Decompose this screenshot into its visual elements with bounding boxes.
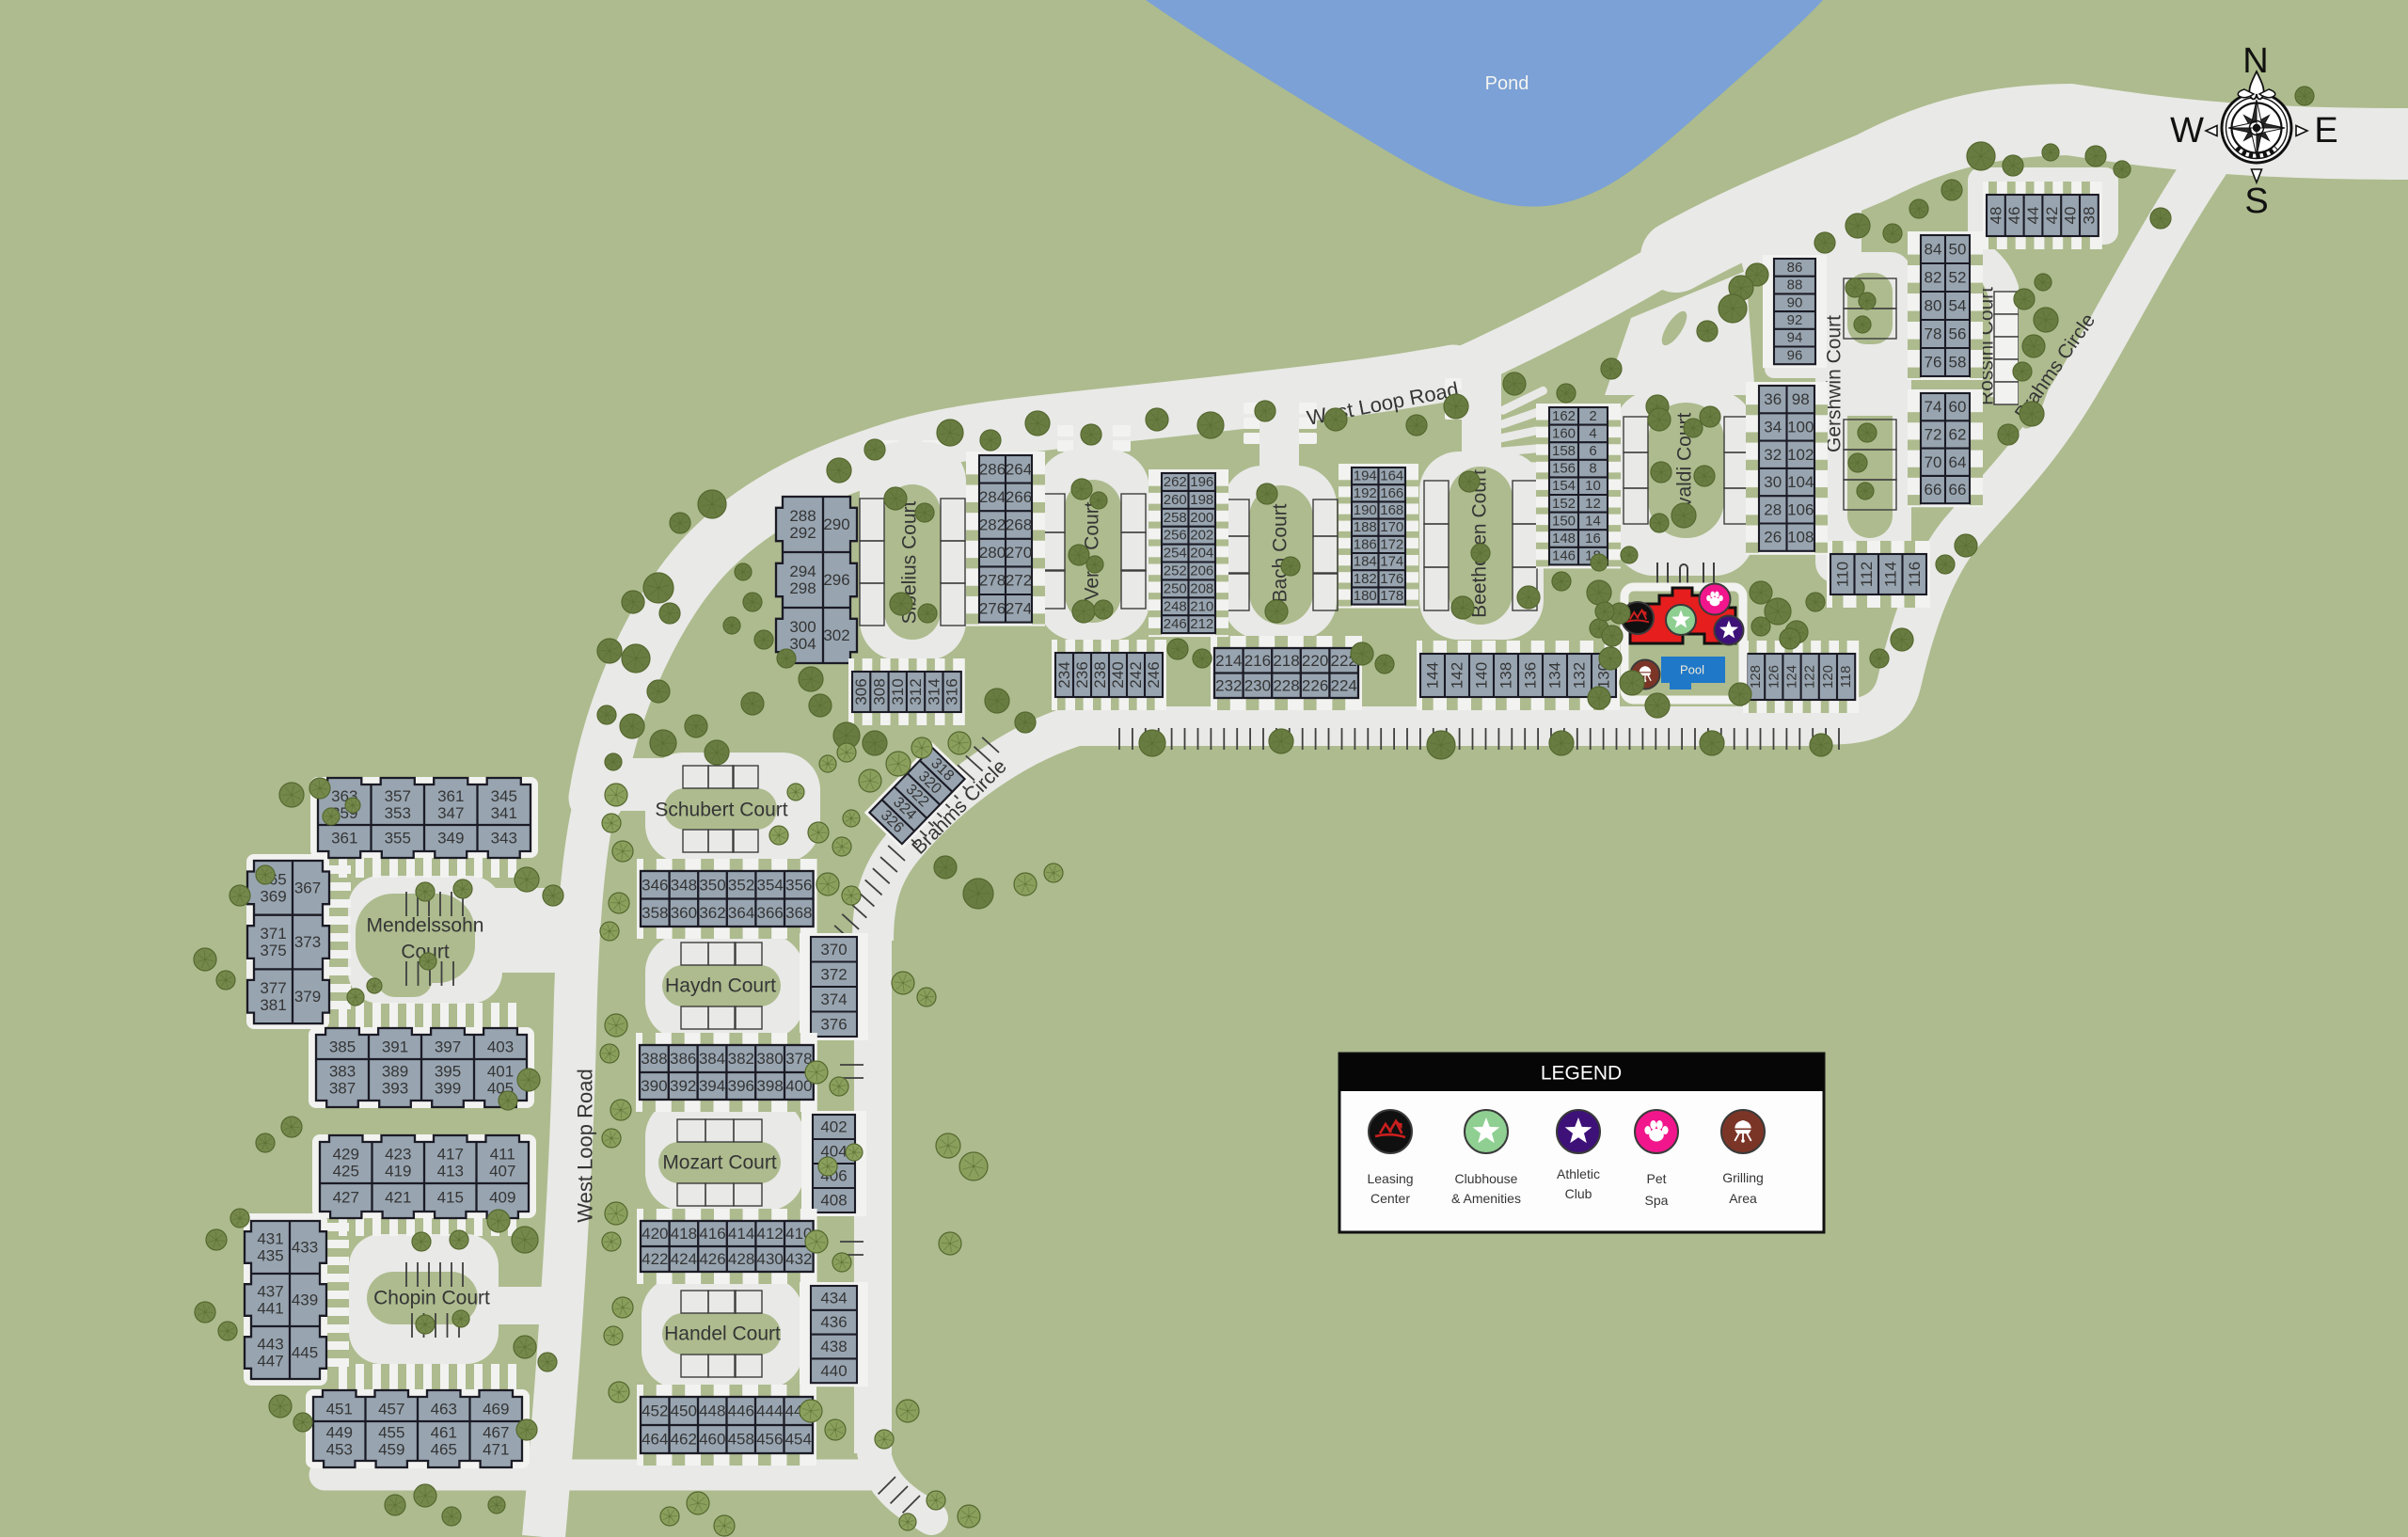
svg-text:210: 210 <box>1190 598 1213 614</box>
svg-text:122: 122 <box>1802 665 1818 689</box>
svg-text:292: 292 <box>789 524 816 542</box>
svg-text:375: 375 <box>260 942 286 959</box>
svg-text:394: 394 <box>699 1077 725 1095</box>
svg-text:425: 425 <box>333 1163 359 1180</box>
svg-text:160: 160 <box>1552 425 1576 441</box>
svg-text:132: 132 <box>1571 662 1589 689</box>
svg-text:216: 216 <box>1244 652 1271 670</box>
svg-text:194: 194 <box>1354 468 1377 484</box>
svg-text:304: 304 <box>789 635 816 653</box>
svg-text:435: 435 <box>257 1247 283 1265</box>
svg-text:346: 346 <box>642 876 668 894</box>
svg-text:150: 150 <box>1552 513 1576 529</box>
svg-text:180: 180 <box>1354 588 1377 604</box>
svg-text:80: 80 <box>1925 297 1942 315</box>
svg-text:440: 440 <box>820 1362 847 1380</box>
svg-text:397: 397 <box>435 1038 461 1056</box>
svg-text:& Amenities: & Amenities <box>1451 1191 1521 1206</box>
svg-text:220: 220 <box>1302 652 1328 670</box>
svg-text:114: 114 <box>1881 562 1899 587</box>
svg-text:376: 376 <box>820 1015 847 1033</box>
svg-text:60: 60 <box>1949 398 1967 416</box>
svg-text:374: 374 <box>820 990 847 1008</box>
svg-text:296: 296 <box>823 571 849 589</box>
svg-text:Leasing: Leasing <box>1367 1171 1413 1186</box>
svg-text:8: 8 <box>1589 461 1596 477</box>
svg-text:136: 136 <box>1522 662 1540 689</box>
svg-text:414: 414 <box>728 1225 754 1243</box>
svg-text:274: 274 <box>1006 599 1032 617</box>
svg-text:254: 254 <box>1164 546 1187 562</box>
svg-text:36: 36 <box>1764 390 1782 408</box>
svg-text:447: 447 <box>257 1353 283 1371</box>
svg-text:110: 110 <box>1833 562 1851 587</box>
svg-text:352: 352 <box>728 876 754 894</box>
svg-text:392: 392 <box>670 1077 696 1095</box>
svg-text:439: 439 <box>292 1291 318 1309</box>
svg-text:380: 380 <box>756 1050 783 1068</box>
svg-text:176: 176 <box>1380 571 1403 587</box>
svg-text:399: 399 <box>435 1080 461 1098</box>
svg-text:Grilling: Grilling <box>1722 1170 1764 1185</box>
svg-text:429: 429 <box>333 1146 359 1164</box>
svg-text:50: 50 <box>1949 241 1967 259</box>
svg-text:Pool: Pool <box>1680 663 1704 677</box>
svg-text:172: 172 <box>1380 536 1403 552</box>
svg-text:288: 288 <box>789 507 816 525</box>
svg-text:108: 108 <box>1787 529 1814 547</box>
svg-text:62: 62 <box>1949 425 1967 443</box>
svg-text:Area: Area <box>1729 1191 1757 1206</box>
svg-text:361: 361 <box>331 830 357 848</box>
svg-text:443: 443 <box>257 1336 283 1354</box>
svg-text:140: 140 <box>1473 662 1491 689</box>
svg-text:389: 389 <box>382 1063 408 1081</box>
svg-text:214: 214 <box>1215 652 1242 670</box>
svg-text:N: N <box>2242 41 2268 81</box>
svg-text:88: 88 <box>1787 277 1803 293</box>
svg-text:366: 366 <box>757 904 784 922</box>
svg-text:186: 186 <box>1354 536 1377 552</box>
svg-text:350: 350 <box>699 876 725 894</box>
svg-text:354: 354 <box>757 876 784 894</box>
svg-text:256: 256 <box>1164 528 1187 544</box>
svg-text:106: 106 <box>1787 500 1814 518</box>
svg-text:461: 461 <box>431 1424 457 1442</box>
svg-text:280: 280 <box>979 544 1006 562</box>
svg-text:431: 431 <box>257 1230 283 1248</box>
svg-text:Chopin Court: Chopin Court <box>373 1288 490 1309</box>
svg-text:348: 348 <box>671 876 697 894</box>
svg-text:357: 357 <box>385 787 411 805</box>
svg-text:358: 358 <box>642 904 668 922</box>
svg-text:126: 126 <box>1766 665 1782 689</box>
svg-text:82: 82 <box>1925 269 1942 287</box>
svg-text:26: 26 <box>1764 529 1782 547</box>
svg-text:38: 38 <box>2080 207 2098 225</box>
svg-text:West Loop Road: West Loop Road <box>574 1069 597 1222</box>
svg-text:379: 379 <box>294 988 321 1006</box>
svg-text:48: 48 <box>1987 207 2004 225</box>
svg-text:58: 58 <box>1949 354 1967 372</box>
svg-text:206: 206 <box>1190 563 1213 578</box>
svg-text:460: 460 <box>699 1431 725 1449</box>
svg-text:438: 438 <box>820 1338 847 1355</box>
svg-text:98: 98 <box>1792 390 1810 408</box>
svg-text:266: 266 <box>1006 488 1032 506</box>
svg-text:232: 232 <box>1215 676 1242 694</box>
svg-text:347: 347 <box>437 804 464 822</box>
svg-text:417: 417 <box>437 1146 464 1164</box>
svg-text:423: 423 <box>385 1146 411 1164</box>
svg-text:238: 238 <box>1091 661 1109 688</box>
svg-text:Spa: Spa <box>1645 1193 1669 1208</box>
svg-text:240: 240 <box>1109 661 1127 688</box>
svg-text:246: 246 <box>1164 616 1187 632</box>
svg-text:446: 446 <box>728 1402 754 1420</box>
svg-text:445: 445 <box>292 1344 318 1362</box>
svg-text:146: 146 <box>1552 548 1576 564</box>
svg-text:408: 408 <box>820 1192 847 1210</box>
svg-text:86: 86 <box>1787 260 1803 276</box>
svg-text:64: 64 <box>1949 453 1967 471</box>
svg-text:294: 294 <box>789 563 816 580</box>
svg-text:148: 148 <box>1552 531 1576 547</box>
svg-text:Schubert Court: Schubert Court <box>655 800 787 821</box>
svg-text:230: 230 <box>1244 676 1271 694</box>
svg-text:449: 449 <box>326 1424 353 1442</box>
svg-text:252: 252 <box>1164 563 1187 578</box>
svg-text:70: 70 <box>1925 453 1942 471</box>
svg-text:284: 284 <box>979 488 1006 506</box>
svg-text:158: 158 <box>1552 443 1576 459</box>
svg-text:142: 142 <box>1449 662 1466 689</box>
svg-text:152: 152 <box>1552 496 1576 512</box>
svg-text:416: 416 <box>699 1225 725 1243</box>
svg-text:52: 52 <box>1949 269 1967 287</box>
svg-text:168: 168 <box>1380 502 1403 518</box>
svg-text:250: 250 <box>1164 580 1187 596</box>
svg-text:154: 154 <box>1552 478 1576 494</box>
svg-text:Bach Court: Bach Court <box>1270 503 1291 602</box>
svg-text:218: 218 <box>1273 652 1299 670</box>
svg-text:74: 74 <box>1925 398 1942 416</box>
svg-text:Handel Court: Handel Court <box>664 1323 781 1345</box>
svg-text:34: 34 <box>1764 418 1782 436</box>
svg-text:226: 226 <box>1302 676 1328 694</box>
svg-text:16: 16 <box>1585 531 1601 547</box>
svg-text:162: 162 <box>1552 408 1576 424</box>
svg-text:316: 316 <box>943 678 961 705</box>
svg-text:28: 28 <box>1764 500 1782 518</box>
svg-text:455: 455 <box>378 1424 404 1442</box>
svg-text:413: 413 <box>437 1163 464 1180</box>
svg-text:402: 402 <box>820 1118 847 1136</box>
svg-text:128: 128 <box>1748 665 1764 689</box>
svg-text:343: 343 <box>491 830 517 848</box>
svg-text:464: 464 <box>642 1431 668 1449</box>
svg-text:306: 306 <box>852 678 870 705</box>
svg-text:412: 412 <box>757 1225 784 1243</box>
svg-text:441: 441 <box>257 1300 283 1318</box>
svg-text:370: 370 <box>820 941 847 959</box>
svg-text:170: 170 <box>1380 519 1403 535</box>
svg-text:234: 234 <box>1055 661 1073 688</box>
svg-text:Mendelssohn: Mendelssohn <box>367 915 484 937</box>
svg-text:270: 270 <box>1006 544 1032 562</box>
svg-text:467: 467 <box>483 1424 509 1442</box>
svg-text:428: 428 <box>728 1250 754 1268</box>
svg-text:40: 40 <box>2062 207 2080 225</box>
svg-text:202: 202 <box>1190 528 1213 544</box>
svg-text:312: 312 <box>907 678 925 705</box>
svg-text:469: 469 <box>483 1401 509 1418</box>
svg-text:278: 278 <box>979 572 1006 590</box>
svg-text:433: 433 <box>292 1239 318 1257</box>
svg-text:188: 188 <box>1354 519 1377 535</box>
svg-text:368: 368 <box>785 904 812 922</box>
svg-text:465: 465 <box>431 1441 457 1459</box>
svg-text:383: 383 <box>329 1063 356 1081</box>
svg-text:90: 90 <box>1787 294 1803 310</box>
svg-text:388: 388 <box>641 1050 667 1068</box>
svg-text:427: 427 <box>333 1189 359 1207</box>
svg-text:14: 14 <box>1585 513 1601 529</box>
svg-text:286: 286 <box>979 460 1006 478</box>
svg-text:411: 411 <box>490 1146 515 1164</box>
svg-text:S: S <box>2244 182 2268 221</box>
svg-text:456: 456 <box>756 1431 783 1449</box>
svg-text:454: 454 <box>785 1431 812 1449</box>
svg-text:444: 444 <box>756 1402 783 1420</box>
svg-text:182: 182 <box>1354 571 1377 587</box>
svg-text:166: 166 <box>1380 485 1403 501</box>
svg-text:Haydn Court: Haydn Court <box>665 975 776 997</box>
svg-text:401: 401 <box>487 1063 514 1081</box>
svg-text:184: 184 <box>1354 554 1377 570</box>
svg-text:355: 355 <box>385 830 411 848</box>
svg-text:437: 437 <box>257 1283 283 1301</box>
svg-text:268: 268 <box>1006 516 1032 534</box>
svg-text:94: 94 <box>1787 330 1803 346</box>
svg-text:390: 390 <box>641 1077 667 1095</box>
svg-text:30: 30 <box>1764 473 1782 491</box>
svg-text:W: W <box>2170 111 2204 151</box>
svg-text:10: 10 <box>1585 478 1601 494</box>
svg-text:54: 54 <box>1949 297 1967 315</box>
svg-text:92: 92 <box>1787 312 1803 328</box>
svg-text:448: 448 <box>699 1402 725 1420</box>
svg-text:264: 264 <box>1006 460 1032 478</box>
svg-text:421: 421 <box>385 1189 411 1207</box>
svg-text:76: 76 <box>1925 354 1942 372</box>
svg-text:377: 377 <box>260 979 286 997</box>
svg-text:276: 276 <box>979 599 1006 617</box>
svg-text:138: 138 <box>1497 662 1515 689</box>
svg-text:102: 102 <box>1787 446 1814 464</box>
svg-text:42: 42 <box>2043 207 2061 225</box>
svg-text:Center: Center <box>1370 1191 1410 1206</box>
svg-text:2: 2 <box>1589 408 1596 424</box>
svg-text:66: 66 <box>1949 481 1967 499</box>
svg-text:360: 360 <box>671 904 697 922</box>
svg-text:415: 415 <box>437 1189 464 1207</box>
svg-text:393: 393 <box>382 1080 408 1098</box>
svg-text:100: 100 <box>1787 418 1814 436</box>
svg-text:200: 200 <box>1190 510 1213 526</box>
svg-text:385: 385 <box>329 1038 356 1056</box>
svg-text:Clubhouse: Clubhouse <box>1455 1171 1518 1186</box>
svg-text:398: 398 <box>756 1077 783 1095</box>
svg-text:369: 369 <box>260 887 286 905</box>
svg-text:Athletic: Athletic <box>1557 1166 1600 1181</box>
svg-text:228: 228 <box>1273 676 1299 694</box>
svg-text:6: 6 <box>1589 443 1596 459</box>
svg-text:262: 262 <box>1164 474 1187 490</box>
svg-text:426: 426 <box>699 1250 725 1268</box>
svg-text:382: 382 <box>728 1050 754 1068</box>
svg-text:418: 418 <box>671 1225 697 1243</box>
svg-text:212: 212 <box>1190 616 1213 632</box>
svg-text:Club: Club <box>1565 1186 1592 1201</box>
svg-text:72: 72 <box>1925 425 1942 443</box>
svg-text:310: 310 <box>889 678 907 705</box>
svg-text:Pet: Pet <box>1646 1171 1666 1186</box>
svg-text:341: 341 <box>491 804 517 822</box>
svg-text:403: 403 <box>487 1038 514 1056</box>
svg-text:84: 84 <box>1925 241 1942 259</box>
svg-text:371: 371 <box>260 925 286 943</box>
svg-text:56: 56 <box>1949 325 1967 343</box>
svg-text:208: 208 <box>1190 580 1213 596</box>
svg-text:430: 430 <box>757 1250 784 1268</box>
svg-text:302: 302 <box>823 626 849 644</box>
svg-text:198: 198 <box>1190 492 1213 508</box>
svg-text:156: 156 <box>1552 461 1576 477</box>
svg-text:78: 78 <box>1925 325 1942 343</box>
svg-text:Pond: Pond <box>1485 73 1529 94</box>
svg-text:314: 314 <box>925 678 943 705</box>
svg-text:4: 4 <box>1589 425 1596 441</box>
svg-text:258: 258 <box>1164 510 1187 526</box>
svg-text:436: 436 <box>820 1313 847 1331</box>
svg-text:120: 120 <box>1820 665 1836 689</box>
svg-text:66: 66 <box>1925 481 1942 499</box>
svg-text:453: 453 <box>326 1441 353 1459</box>
svg-text:248: 248 <box>1164 598 1187 614</box>
svg-text:420: 420 <box>642 1225 668 1243</box>
svg-text:116: 116 <box>1906 562 1924 587</box>
svg-text:174: 174 <box>1380 554 1403 570</box>
svg-text:164: 164 <box>1380 468 1403 484</box>
svg-text:459: 459 <box>378 1441 404 1459</box>
svg-text:407: 407 <box>489 1163 515 1180</box>
svg-text:471: 471 <box>483 1441 509 1459</box>
svg-text:298: 298 <box>789 579 816 597</box>
svg-text:190: 190 <box>1354 502 1377 518</box>
svg-text:462: 462 <box>671 1431 697 1449</box>
svg-text:224: 224 <box>1331 676 1357 694</box>
svg-text:367: 367 <box>294 879 321 896</box>
svg-text:LEGEND: LEGEND <box>1541 1063 1622 1085</box>
svg-text:242: 242 <box>1127 661 1145 688</box>
svg-text:112: 112 <box>1858 562 1876 587</box>
svg-text:260: 260 <box>1164 492 1187 508</box>
svg-text:282: 282 <box>979 516 1006 534</box>
svg-text:272: 272 <box>1006 572 1032 590</box>
svg-text:356: 356 <box>785 876 812 894</box>
svg-text:361: 361 <box>437 787 464 805</box>
svg-text:384: 384 <box>699 1050 725 1068</box>
svg-text:362: 362 <box>699 904 725 922</box>
svg-text:246: 246 <box>1145 661 1163 688</box>
svg-text:192: 192 <box>1354 485 1377 501</box>
svg-text:144: 144 <box>1424 662 1442 689</box>
svg-text:300: 300 <box>789 618 816 636</box>
svg-text:46: 46 <box>2005 207 2023 225</box>
svg-text:434: 434 <box>820 1289 847 1307</box>
svg-text:236: 236 <box>1073 661 1091 688</box>
svg-text:432: 432 <box>785 1250 812 1268</box>
svg-text:32: 32 <box>1764 446 1782 464</box>
svg-text:422: 422 <box>642 1250 668 1268</box>
svg-text:424: 424 <box>671 1250 697 1268</box>
svg-text:353: 353 <box>385 804 411 822</box>
svg-text:118: 118 <box>1838 666 1854 689</box>
svg-text:44: 44 <box>2024 207 2042 225</box>
svg-text:463: 463 <box>431 1401 457 1418</box>
svg-text:372: 372 <box>820 965 847 983</box>
svg-text:451: 451 <box>326 1401 353 1418</box>
svg-text:364: 364 <box>728 904 754 922</box>
svg-text:457: 457 <box>378 1401 404 1418</box>
svg-text:386: 386 <box>670 1050 696 1068</box>
svg-text:308: 308 <box>870 678 888 705</box>
svg-text:134: 134 <box>1546 662 1564 689</box>
svg-text:196: 196 <box>1190 474 1213 490</box>
svg-text:387: 387 <box>329 1080 356 1098</box>
svg-text:452: 452 <box>642 1402 668 1420</box>
svg-text:395: 395 <box>435 1063 461 1081</box>
svg-text:419: 419 <box>385 1163 411 1180</box>
svg-text:349: 349 <box>437 830 464 848</box>
svg-text:104: 104 <box>1787 473 1814 491</box>
svg-text:96: 96 <box>1787 347 1803 363</box>
svg-text:178: 178 <box>1380 588 1403 604</box>
svg-text:396: 396 <box>728 1077 754 1095</box>
svg-text:391: 391 <box>382 1038 408 1056</box>
svg-text:450: 450 <box>671 1402 697 1420</box>
svg-text:373: 373 <box>294 933 321 951</box>
svg-text:381: 381 <box>260 996 286 1014</box>
svg-text:Mozart Court: Mozart Court <box>662 1152 777 1174</box>
svg-text:458: 458 <box>728 1431 754 1449</box>
svg-text:E: E <box>2314 111 2337 151</box>
svg-text:204: 204 <box>1190 546 1213 562</box>
svg-text:124: 124 <box>1784 665 1800 689</box>
svg-text:12: 12 <box>1585 496 1601 512</box>
svg-text:345: 345 <box>491 787 517 805</box>
svg-text:409: 409 <box>489 1189 515 1207</box>
svg-text:290: 290 <box>823 515 849 533</box>
